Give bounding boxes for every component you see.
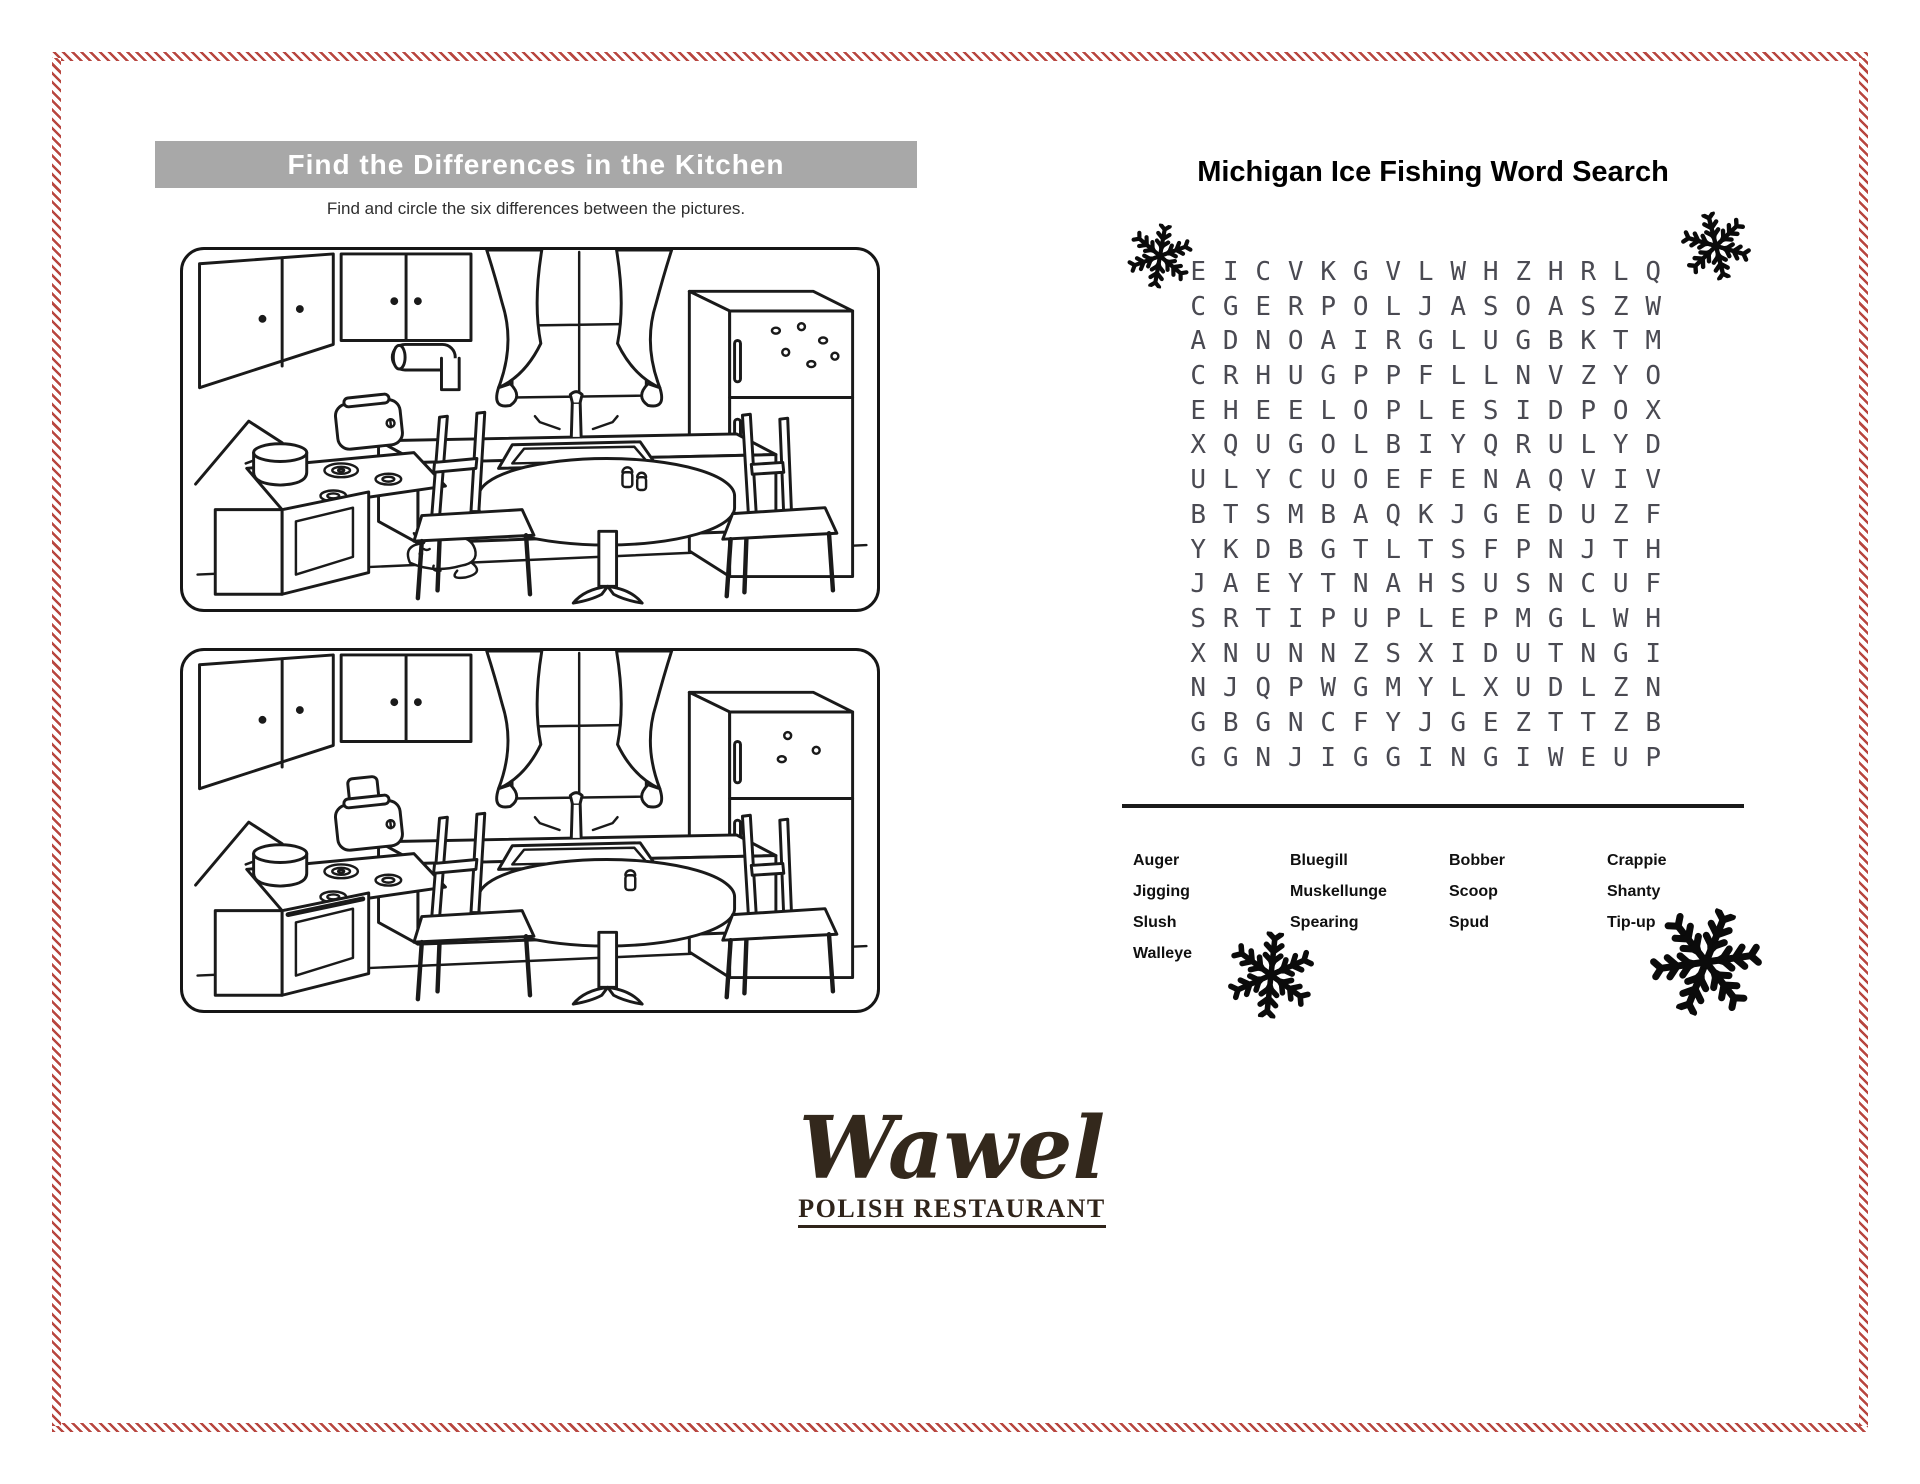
grid-letter: G	[1345, 671, 1378, 706]
grid-letter: S	[1507, 567, 1540, 602]
grid-letter: I	[1410, 428, 1443, 463]
grid-letter: G	[1507, 324, 1540, 359]
grid-letter: I	[1442, 637, 1475, 672]
grid-letter: S	[1442, 533, 1475, 568]
grid-letter: T	[1540, 706, 1573, 741]
grid-letter: E	[1377, 463, 1410, 498]
grid-letter: U	[1345, 602, 1378, 637]
grid-letter: L	[1215, 463, 1248, 498]
grid-letter: I	[1637, 637, 1670, 672]
grid-letter: P	[1377, 359, 1410, 394]
grid-letter: L	[1572, 602, 1605, 637]
grid-letter: I	[1312, 741, 1345, 776]
kitchen-scene-bottom-drawing	[183, 651, 877, 1010]
grid-letter: U	[1507, 671, 1540, 706]
grid-letter: U	[1540, 428, 1573, 463]
grid-letter: L	[1410, 394, 1443, 429]
grid-letter: Z	[1605, 706, 1638, 741]
grid-row: CRHUGPPFLLNVZYO	[1182, 359, 1670, 394]
grid-letter: A	[1345, 498, 1378, 533]
grid-letter: A	[1215, 567, 1248, 602]
grid-letter: D	[1540, 498, 1573, 533]
grid-letter: N	[1572, 637, 1605, 672]
grid-letter: U	[1572, 498, 1605, 533]
grid-letter: Z	[1507, 706, 1540, 741]
grid-letter: S	[1442, 567, 1475, 602]
grid-letter: K	[1410, 498, 1443, 533]
grid-letter: G	[1182, 706, 1215, 741]
grid-letter: O	[1345, 394, 1378, 429]
grid-letter: K	[1572, 324, 1605, 359]
grid-letter: Z	[1605, 290, 1638, 325]
grid-letter: O	[1345, 463, 1378, 498]
grid-letter: B	[1377, 428, 1410, 463]
grid-letter: S	[1377, 637, 1410, 672]
grid-letter: M	[1507, 602, 1540, 637]
find-differences-title: Find the Differences in the Kitchen	[287, 149, 784, 180]
grid-letter: J	[1410, 290, 1443, 325]
grid-letter: Y	[1605, 428, 1638, 463]
grid-letter: D	[1475, 637, 1508, 672]
grid-letter: Q	[1475, 428, 1508, 463]
grid-letter: N	[1345, 567, 1378, 602]
grid-letter: U	[1475, 567, 1508, 602]
grid-letter: B	[1215, 706, 1248, 741]
grid-letter: E	[1442, 602, 1475, 637]
grid-letter: P	[1345, 359, 1378, 394]
grid-letter: V	[1637, 463, 1670, 498]
grid-letter: O	[1507, 290, 1540, 325]
word-list-column: CrappieShantyTip-up	[1607, 845, 1667, 938]
grid-letter: D	[1247, 533, 1280, 568]
grid-letter: M	[1637, 324, 1670, 359]
grid-letter: E	[1280, 394, 1313, 429]
grid-letter: G	[1280, 428, 1313, 463]
grid-letter: X	[1637, 394, 1670, 429]
grid-letter: W	[1605, 602, 1638, 637]
grid-letter: B	[1540, 324, 1573, 359]
grid-letter: P	[1507, 533, 1540, 568]
word-list-item: Auger	[1133, 845, 1192, 876]
grid-letter: F	[1637, 567, 1670, 602]
grid-letter: O	[1605, 394, 1638, 429]
grid-letter: E	[1442, 394, 1475, 429]
snowflake-icon	[1675, 205, 1757, 287]
word-list-item: Scoop	[1449, 876, 1505, 907]
grid-letter: G	[1442, 706, 1475, 741]
grid-letter: T	[1247, 602, 1280, 637]
grid-letter: F	[1410, 359, 1443, 394]
grid-letter: F	[1345, 706, 1378, 741]
grid-letter: H	[1475, 255, 1508, 290]
grid-letter: L	[1605, 255, 1638, 290]
grid-letter: P	[1637, 741, 1670, 776]
grid-letter: E	[1442, 463, 1475, 498]
grid-letter: G	[1215, 741, 1248, 776]
grid-letter: U	[1605, 567, 1638, 602]
stripe-border-right	[1859, 58, 1868, 1426]
grid-letter: H	[1247, 359, 1280, 394]
grid-letter: P	[1377, 394, 1410, 429]
grid-letter: L	[1410, 255, 1443, 290]
grid-letter: Y	[1280, 567, 1313, 602]
grid-letter: B	[1182, 498, 1215, 533]
grid-letter: G	[1410, 324, 1443, 359]
grid-letter: C	[1280, 463, 1313, 498]
grid-letter: G	[1312, 359, 1345, 394]
grid-letter: G	[1182, 741, 1215, 776]
grid-letter: E	[1182, 394, 1215, 429]
grid-letter: R	[1507, 428, 1540, 463]
grid-letter: H	[1410, 567, 1443, 602]
grid-letter: N	[1247, 324, 1280, 359]
grid-letter: I	[1345, 324, 1378, 359]
grid-row: ULYCUOEFENAQVIV	[1182, 463, 1670, 498]
word-list-item: Spud	[1449, 907, 1505, 938]
grid-letter: Z	[1345, 637, 1378, 672]
word-list-item: Jigging	[1133, 876, 1192, 907]
word-list-item: Slush	[1133, 907, 1192, 938]
grid-letter: Y	[1377, 706, 1410, 741]
grid-row: EICVKGVLWHZHRLQ	[1182, 255, 1670, 290]
grid-letter: D	[1540, 394, 1573, 429]
grid-letter: G	[1312, 533, 1345, 568]
grid-letter: U	[1247, 637, 1280, 672]
grid-row: JAEYTNAHSUSNCUF	[1182, 567, 1670, 602]
grid-letter: N	[1637, 671, 1670, 706]
grid-letter: A	[1377, 567, 1410, 602]
grid-letter: L	[1312, 394, 1345, 429]
grid-letter: N	[1280, 637, 1313, 672]
grid-letter: V	[1377, 255, 1410, 290]
snowflake-icon	[1123, 219, 1197, 293]
word-list-item: Bobber	[1449, 845, 1505, 876]
grid-letter: U	[1182, 463, 1215, 498]
grid-letter: D	[1540, 671, 1573, 706]
grid-row: XQUGOLBIYQRULYD	[1182, 428, 1670, 463]
grid-letter: C	[1572, 567, 1605, 602]
grid-letter: L	[1345, 428, 1378, 463]
grid-row: XNUNNZSXIDUTNGI	[1182, 637, 1670, 672]
grid-letter: N	[1507, 359, 1540, 394]
grid-letter: D	[1215, 324, 1248, 359]
grid-letter: H	[1637, 602, 1670, 637]
grid-letter: L	[1410, 602, 1443, 637]
grid-letter: R	[1215, 602, 1248, 637]
grid-letter: T	[1410, 533, 1443, 568]
grid-letter: I	[1410, 741, 1443, 776]
grid-letter: R	[1215, 359, 1248, 394]
grid-letter: V	[1540, 359, 1573, 394]
grid-letter: T	[1312, 567, 1345, 602]
grid-letter: U	[1312, 463, 1345, 498]
grid-letter: X	[1182, 637, 1215, 672]
grid-letter: L	[1442, 324, 1475, 359]
grid-letter: Y	[1247, 463, 1280, 498]
grid-letter: C	[1247, 255, 1280, 290]
grid-letter: I	[1280, 602, 1313, 637]
find-differences-instructions: Find and circle the six differences betw…	[155, 199, 917, 219]
grid-letter: T	[1605, 324, 1638, 359]
grid-letter: H	[1215, 394, 1248, 429]
grid-letter: F	[1410, 463, 1443, 498]
grid-letter: Y	[1182, 533, 1215, 568]
grid-letter: W	[1540, 741, 1573, 776]
grid-letter: J	[1572, 533, 1605, 568]
grid-letter: N	[1280, 706, 1313, 741]
kitchen-scene-top	[180, 247, 880, 612]
grid-letter: S	[1182, 602, 1215, 637]
stripe-border-top	[52, 52, 1868, 61]
grid-letter: S	[1475, 290, 1508, 325]
grid-letter: Z	[1572, 359, 1605, 394]
word-list-item: Walleye	[1133, 938, 1192, 969]
grid-letter: P	[1475, 602, 1508, 637]
grid-row: NJQPWGMYLXUDLZN	[1182, 671, 1670, 706]
grid-letter: A	[1507, 463, 1540, 498]
grid-letter: A	[1540, 290, 1573, 325]
grid-letter: F	[1637, 498, 1670, 533]
grid-letter: B	[1312, 498, 1345, 533]
grid-letter: X	[1475, 671, 1508, 706]
grid-row: EHEELOPLESIDPOX	[1182, 394, 1670, 429]
kitchen-scene-top-drawing	[183, 250, 877, 609]
stripe-border-left	[52, 58, 61, 1426]
grid-letter: L	[1377, 533, 1410, 568]
grid-letter: P	[1280, 671, 1313, 706]
grid-letter: N	[1182, 671, 1215, 706]
grid-letter: U	[1507, 637, 1540, 672]
grid-letter: L	[1442, 671, 1475, 706]
grid-letter: V	[1572, 463, 1605, 498]
grid-letter: R	[1280, 290, 1313, 325]
grid-letter: N	[1312, 637, 1345, 672]
grid-letter: Y	[1442, 428, 1475, 463]
grid-letter: J	[1442, 498, 1475, 533]
grid-letter: I	[1507, 741, 1540, 776]
stripe-border-bottom	[52, 1423, 1868, 1432]
grid-letter: G	[1377, 741, 1410, 776]
grid-letter: P	[1312, 602, 1345, 637]
grid-letter: E	[1572, 741, 1605, 776]
grid-letter: Z	[1605, 671, 1638, 706]
grid-letter: S	[1247, 498, 1280, 533]
grid-letter: Q	[1377, 498, 1410, 533]
grid-letter: W	[1637, 290, 1670, 325]
grid-letter: J	[1410, 706, 1443, 741]
grid-letter: U	[1475, 324, 1508, 359]
word-list-divider	[1122, 804, 1744, 808]
grid-letter: Z	[1605, 498, 1638, 533]
grid-letter: G	[1540, 602, 1573, 637]
grid-letter: B	[1637, 706, 1670, 741]
grid-letter: R	[1572, 255, 1605, 290]
grid-letter: U	[1280, 359, 1313, 394]
grid-row: ADNOAIRGLUGBKTM	[1182, 324, 1670, 359]
grid-letter: N	[1540, 533, 1573, 568]
grid-letter: W	[1442, 255, 1475, 290]
grid-letter: Y	[1605, 359, 1638, 394]
grid-letter: G	[1345, 741, 1378, 776]
grid-letter: G	[1605, 637, 1638, 672]
grid-letter: C	[1182, 359, 1215, 394]
grid-letter: T	[1540, 637, 1573, 672]
grid-letter: K	[1215, 533, 1248, 568]
grid-row: SRTIPUPLEPMGLWH	[1182, 602, 1670, 637]
grid-letter: G	[1475, 741, 1508, 776]
grid-letter: K	[1312, 255, 1345, 290]
grid-letter: O	[1280, 324, 1313, 359]
grid-letter: G	[1247, 706, 1280, 741]
word-list-item: Spearing	[1290, 907, 1387, 938]
grid-letter: E	[1475, 706, 1508, 741]
word-list-item: Muskellunge	[1290, 876, 1387, 907]
word-list-column: AugerJiggingSlushWalleye	[1133, 845, 1192, 969]
word-list-item: Tip-up	[1607, 907, 1667, 938]
grid-letter: Y	[1410, 671, 1443, 706]
grid-letter: D	[1637, 428, 1670, 463]
grid-letter: N	[1215, 637, 1248, 672]
grid-letter: L	[1572, 671, 1605, 706]
grid-letter: O	[1345, 290, 1378, 325]
restaurant-logo: Wawel POLISH RESTAURANT	[702, 1106, 1202, 1228]
grid-row: GBGNCFYJGEZTTZB	[1182, 706, 1670, 741]
word-list-item: Shanty	[1607, 876, 1667, 907]
grid-letter: J	[1280, 741, 1313, 776]
grid-letter: O	[1637, 359, 1670, 394]
word-list-column: BobberScoopSpud	[1449, 845, 1505, 938]
grid-letter: G	[1475, 498, 1508, 533]
grid-letter: P	[1312, 290, 1345, 325]
grid-letter: E	[1247, 290, 1280, 325]
grid-row: YKDBGTLTSFPNJTH	[1182, 533, 1670, 568]
grid-letter: U	[1247, 428, 1280, 463]
grid-letter: Q	[1637, 255, 1670, 290]
grid-letter: F	[1475, 533, 1508, 568]
grid-letter: M	[1280, 498, 1313, 533]
grid-row: BTSMBAQKJGEDUZF	[1182, 498, 1670, 533]
grid-letter: I	[1215, 255, 1248, 290]
grid-letter: E	[1507, 498, 1540, 533]
grid-letter: I	[1605, 463, 1638, 498]
word-list-item: Crappie	[1607, 845, 1667, 876]
grid-letter: V	[1280, 255, 1313, 290]
word-search-title: Michigan Ice Fishing Word Search	[1122, 156, 1744, 189]
grid-row: CGERPOLJASOASZW	[1182, 290, 1670, 325]
grid-letter: L	[1442, 359, 1475, 394]
grid-letter: C	[1312, 706, 1345, 741]
logo-subtitle: POLISH RESTAURANT	[798, 1194, 1105, 1228]
grid-letter: L	[1475, 359, 1508, 394]
grid-letter: G	[1345, 255, 1378, 290]
word-list-item: Bluegill	[1290, 845, 1387, 876]
grid-letter: E	[1247, 394, 1280, 429]
grid-letter: S	[1572, 290, 1605, 325]
grid-letter: R	[1377, 324, 1410, 359]
grid-letter: L	[1572, 428, 1605, 463]
grid-letter: N	[1247, 741, 1280, 776]
grid-letter: S	[1475, 394, 1508, 429]
grid-letter: H	[1637, 533, 1670, 568]
grid-letter: Q	[1247, 671, 1280, 706]
grid-letter: T	[1572, 706, 1605, 741]
grid-letter: A	[1312, 324, 1345, 359]
grid-letter: W	[1312, 671, 1345, 706]
grid-letter: N	[1540, 567, 1573, 602]
logo-script-name: Wawel	[702, 1106, 1202, 1192]
grid-letter: X	[1410, 637, 1443, 672]
kitchen-scene-bottom	[180, 648, 880, 1013]
word-list-column: BluegillMuskellungeSpearing	[1290, 845, 1387, 938]
grid-letter: T	[1345, 533, 1378, 568]
placemat-page: Find the Differences in the Kitchen Find…	[0, 0, 1920, 1484]
grid-letter: T	[1215, 498, 1248, 533]
snowflake-icon	[1224, 928, 1319, 1023]
grid-letter: P	[1377, 602, 1410, 637]
grid-letter: L	[1377, 290, 1410, 325]
grid-letter: E	[1247, 567, 1280, 602]
grid-letter: A	[1442, 290, 1475, 325]
grid-letter: B	[1280, 533, 1313, 568]
grid-letter: J	[1215, 671, 1248, 706]
grid-row: GGNJIGGINGIWEUP	[1182, 741, 1670, 776]
grid-letter: O	[1312, 428, 1345, 463]
grid-letter: T	[1605, 533, 1638, 568]
grid-letter: G	[1215, 290, 1248, 325]
grid-letter: I	[1507, 394, 1540, 429]
grid-letter: C	[1182, 290, 1215, 325]
grid-letter: P	[1572, 394, 1605, 429]
grid-letter: M	[1377, 671, 1410, 706]
grid-letter: Q	[1215, 428, 1248, 463]
grid-letter: U	[1605, 741, 1638, 776]
grid-letter: N	[1475, 463, 1508, 498]
find-differences-banner: Find the Differences in the Kitchen	[155, 141, 917, 188]
grid-letter: A	[1182, 324, 1215, 359]
grid-letter: H	[1540, 255, 1573, 290]
grid-letter: Z	[1507, 255, 1540, 290]
grid-letter: N	[1442, 741, 1475, 776]
grid-letter: Q	[1540, 463, 1573, 498]
grid-letter: X	[1182, 428, 1215, 463]
word-search-grid: EICVKGVLWHZHRLQCGERPOLJASOASZWADNOAIRGLU…	[1182, 255, 1670, 775]
grid-letter: J	[1182, 567, 1215, 602]
